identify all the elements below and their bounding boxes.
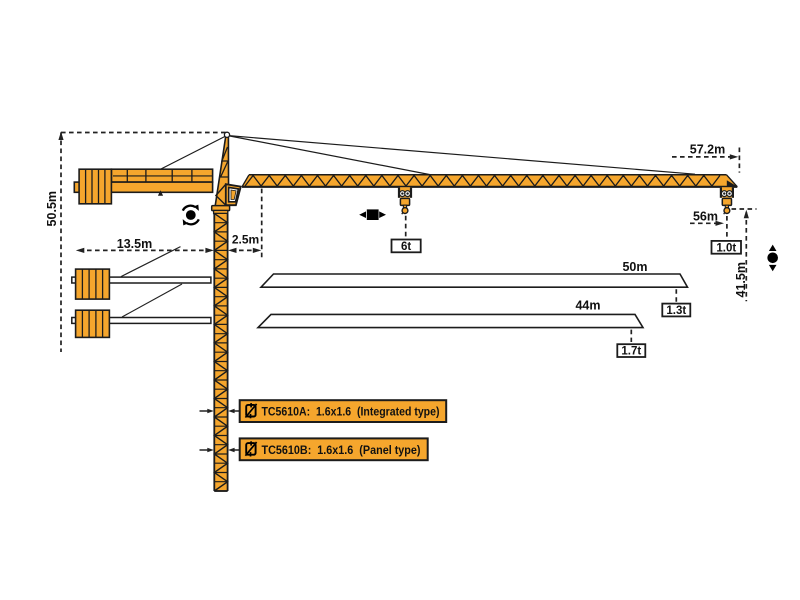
- svg-text:1.0t: 1.0t: [716, 242, 736, 254]
- svg-text:56m: 56m: [693, 210, 718, 224]
- svg-text:TC5610A: 1.6x1.6 (Integrated: TC5610A: 1.6x1.6 (Integrated type): [262, 405, 440, 419]
- svg-text:1.3t: 1.3t: [666, 305, 686, 317]
- svg-text:6t: 6t: [401, 241, 411, 253]
- svg-text:TC5610B: 1.6x1.6 (Panel type: TC5610B: 1.6x1.6 (Panel type): [262, 443, 421, 457]
- svg-text:2.5m: 2.5m: [232, 233, 259, 247]
- svg-text:57.2m: 57.2m: [690, 142, 725, 156]
- svg-text:44m: 44m: [575, 298, 600, 312]
- svg-text:50m: 50m: [622, 260, 647, 274]
- svg-text:50.5m: 50.5m: [45, 191, 59, 226]
- svg-text:41.5m: 41.5m: [734, 262, 748, 297]
- svg-text:1.7t: 1.7t: [621, 346, 641, 358]
- svg-text:13.5m: 13.5m: [117, 237, 152, 251]
